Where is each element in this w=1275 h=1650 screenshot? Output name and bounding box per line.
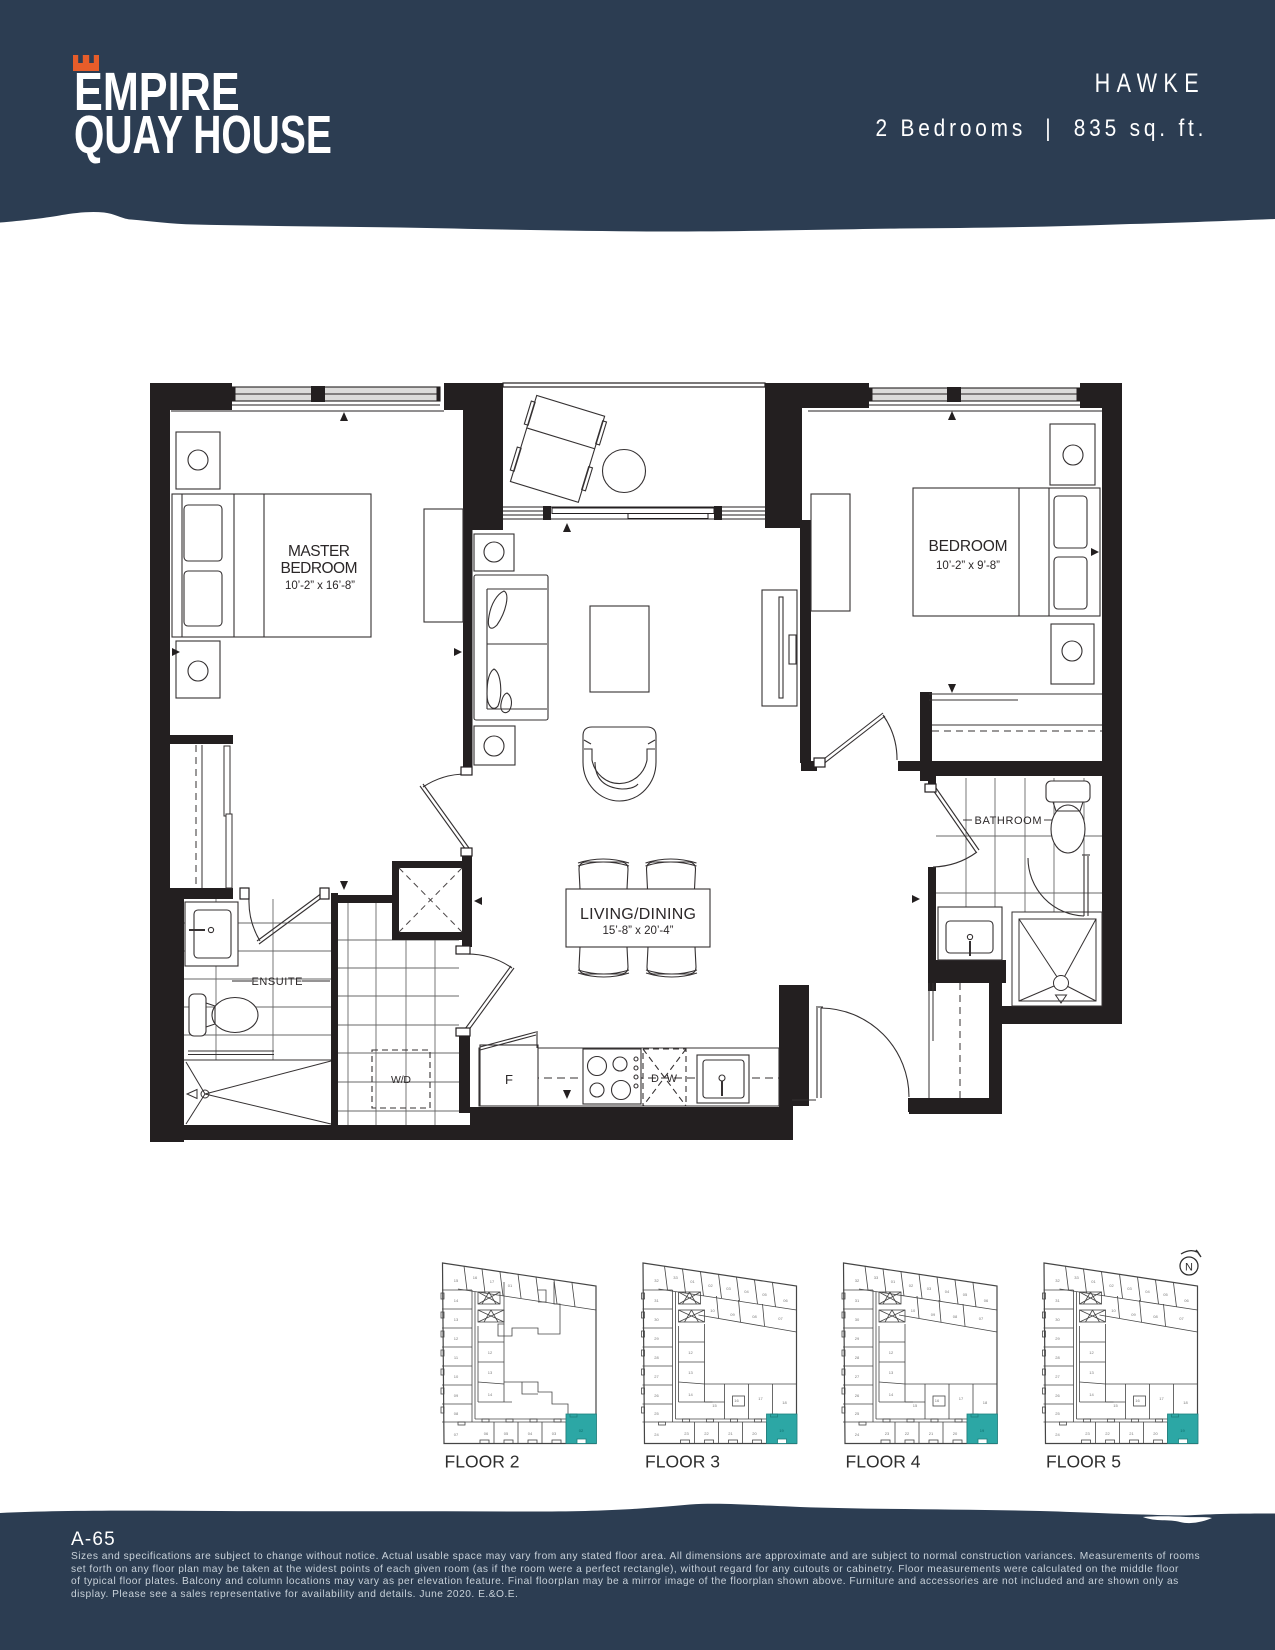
svg-text:13: 13 (1089, 1370, 1094, 1375)
svg-text:14: 14 (889, 1392, 894, 1397)
svg-text:30: 30 (1055, 1317, 1060, 1322)
svg-text:05: 05 (1163, 1292, 1168, 1297)
svg-text:10’-2” x 9’-8”: 10’-2” x 9’-8” (936, 560, 1000, 572)
svg-text:10: 10 (710, 1308, 715, 1313)
svg-text:04: 04 (1145, 1289, 1150, 1294)
svg-text:13: 13 (688, 1370, 693, 1375)
svg-text:22: 22 (704, 1431, 709, 1436)
svg-text:28: 28 (1055, 1355, 1060, 1360)
svg-text:01: 01 (508, 1283, 513, 1288)
svg-text:07: 07 (979, 1316, 984, 1321)
svg-text:03: 03 (726, 1286, 731, 1291)
svg-text:01: 01 (690, 1279, 695, 1284)
svg-text:28: 28 (654, 1355, 659, 1360)
svg-text:02: 02 (909, 1283, 914, 1288)
svg-text:32: 32 (654, 1278, 659, 1283)
svg-text:17: 17 (959, 1396, 964, 1401)
svg-text:04: 04 (528, 1431, 533, 1436)
svg-text:12: 12 (1089, 1350, 1094, 1355)
svg-text:29: 29 (855, 1336, 860, 1341)
svg-text:N: N (1185, 1262, 1193, 1274)
svg-text:28: 28 (855, 1355, 860, 1360)
svg-text:16: 16 (1135, 1398, 1140, 1403)
svg-text:06: 06 (484, 1431, 489, 1436)
svg-text:08: 08 (953, 1314, 958, 1319)
svg-text:BEDROOM: BEDROOM (281, 560, 358, 577)
svg-text:30: 30 (855, 1317, 860, 1322)
svg-text:15: 15 (913, 1403, 918, 1408)
svg-text:FLOOR 3: FLOOR 3 (645, 1452, 720, 1472)
svg-text:17: 17 (1159, 1396, 1164, 1401)
svg-text:01: 01 (1091, 1279, 1096, 1284)
svg-text:14: 14 (488, 1392, 493, 1397)
svg-text:20: 20 (1153, 1431, 1158, 1436)
svg-text:09: 09 (730, 1312, 735, 1317)
svg-text:30: 30 (654, 1317, 659, 1322)
svg-text:05: 05 (504, 1431, 509, 1436)
svg-text:FLOOR 5: FLOOR 5 (1046, 1452, 1121, 1472)
svg-text:13: 13 (889, 1370, 894, 1375)
svg-text:26: 26 (1055, 1393, 1060, 1398)
svg-text:DW: DW (651, 1073, 678, 1085)
svg-text:14: 14 (1089, 1392, 1094, 1397)
svg-text:21: 21 (728, 1431, 733, 1436)
svg-text:02: 02 (579, 1428, 584, 1433)
svg-text:09: 09 (454, 1393, 459, 1398)
svg-text:10: 10 (911, 1308, 916, 1313)
svg-text:08: 08 (1153, 1314, 1158, 1319)
svg-text:32: 32 (1055, 1278, 1060, 1283)
svg-text:BEDROOM: BEDROOM (929, 538, 1008, 555)
svg-text:05: 05 (963, 1292, 968, 1297)
svg-text:16: 16 (935, 1398, 940, 1403)
svg-text:FLOOR 4: FLOOR 4 (846, 1452, 921, 1472)
svg-text:23: 23 (1085, 1431, 1090, 1436)
svg-text:27: 27 (1055, 1374, 1060, 1379)
svg-text:25: 25 (855, 1411, 860, 1416)
svg-text:W/D: W/D (391, 1074, 411, 1086)
svg-text:MASTER: MASTER (288, 543, 350, 560)
svg-text:24: 24 (654, 1432, 659, 1437)
svg-text:20: 20 (953, 1431, 958, 1436)
svg-text:10: 10 (1111, 1308, 1116, 1313)
svg-text:21: 21 (1129, 1431, 1134, 1436)
svg-text:27: 27 (654, 1374, 659, 1379)
svg-text:26: 26 (654, 1393, 659, 1398)
svg-text:02: 02 (1109, 1283, 1114, 1288)
svg-text:24: 24 (1055, 1432, 1060, 1437)
svg-text:07: 07 (778, 1316, 783, 1321)
svg-text:16: 16 (473, 1275, 478, 1280)
svg-text:14: 14 (454, 1298, 459, 1303)
svg-text:19: 19 (1180, 1428, 1185, 1433)
svg-text:03: 03 (927, 1286, 932, 1291)
svg-text:06: 06 (984, 1298, 989, 1303)
svg-text:32: 32 (855, 1278, 860, 1283)
svg-text:F: F (505, 1072, 513, 1087)
svg-text:17: 17 (490, 1279, 495, 1284)
svg-text:08: 08 (454, 1411, 459, 1416)
svg-text:27: 27 (855, 1374, 860, 1379)
svg-text:03: 03 (552, 1431, 557, 1436)
svg-text:31: 31 (855, 1298, 860, 1303)
svg-text:17: 17 (758, 1396, 763, 1401)
svg-text:12: 12 (454, 1336, 459, 1341)
svg-text:22: 22 (905, 1431, 910, 1436)
svg-text:33: 33 (673, 1275, 678, 1280)
svg-text:29: 29 (654, 1336, 659, 1341)
svg-text:29: 29 (1055, 1336, 1060, 1341)
svg-text:12: 12 (688, 1350, 693, 1355)
svg-text:04: 04 (945, 1289, 950, 1294)
svg-text:01: 01 (891, 1279, 896, 1284)
svg-text:19: 19 (779, 1428, 784, 1433)
svg-text:15: 15 (454, 1278, 459, 1283)
svg-text:09: 09 (931, 1312, 936, 1317)
svg-text:15: 15 (1113, 1403, 1118, 1408)
svg-text:18: 18 (983, 1400, 988, 1405)
svg-text:22: 22 (1105, 1431, 1110, 1436)
svg-text:08: 08 (752, 1314, 757, 1319)
svg-text:15: 15 (712, 1403, 717, 1408)
svg-text:33: 33 (874, 1275, 879, 1280)
svg-text:33: 33 (1074, 1275, 1079, 1280)
svg-text:23: 23 (684, 1431, 689, 1436)
svg-text:25: 25 (1055, 1411, 1060, 1416)
svg-text:20: 20 (752, 1431, 757, 1436)
svg-text:14: 14 (688, 1392, 693, 1397)
svg-text:06: 06 (1184, 1298, 1189, 1303)
svg-text:11: 11 (454, 1355, 459, 1360)
svg-text:07: 07 (1179, 1316, 1184, 1321)
svg-text:12: 12 (488, 1350, 493, 1355)
svg-text:09: 09 (1131, 1312, 1136, 1317)
svg-text:15’-8” x 20’-4”: 15’-8” x 20’-4” (603, 925, 674, 937)
svg-text:ENSUITE: ENSUITE (252, 976, 303, 988)
svg-text:16: 16 (734, 1398, 739, 1403)
svg-text:12: 12 (889, 1350, 894, 1355)
svg-text:25: 25 (654, 1411, 659, 1416)
svg-text:04: 04 (744, 1289, 749, 1294)
svg-text:FLOOR 2: FLOOR 2 (445, 1452, 520, 1472)
svg-text:LIVING/DINING: LIVING/DINING (580, 906, 696, 923)
svg-text:26: 26 (855, 1393, 860, 1398)
svg-text:18: 18 (782, 1400, 787, 1405)
svg-text:03: 03 (1127, 1286, 1132, 1291)
svg-text:BATHROOM: BATHROOM (975, 815, 1042, 827)
svg-text:05: 05 (762, 1292, 767, 1297)
svg-text:23: 23 (885, 1431, 890, 1436)
svg-text:21: 21 (929, 1431, 934, 1436)
svg-text:10’-2” x 16’-8”: 10’-2” x 16’-8” (285, 580, 355, 592)
svg-text:13: 13 (488, 1370, 493, 1375)
svg-text:31: 31 (1055, 1298, 1060, 1303)
svg-text:07: 07 (454, 1432, 459, 1437)
svg-text:06: 06 (783, 1298, 788, 1303)
svg-text:19: 19 (980, 1428, 985, 1433)
svg-text:13: 13 (454, 1317, 459, 1322)
svg-text:10: 10 (454, 1374, 459, 1379)
svg-text:18: 18 (1183, 1400, 1188, 1405)
svg-text:02: 02 (708, 1283, 713, 1288)
svg-text:31: 31 (654, 1298, 659, 1303)
svg-text:24: 24 (855, 1432, 860, 1437)
